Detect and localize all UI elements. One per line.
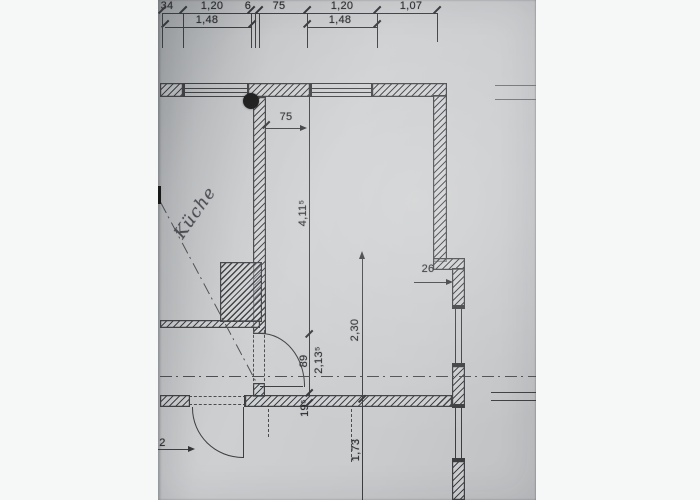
dim-label-107: 1,07	[398, 0, 424, 12]
right-wall-segment	[452, 366, 465, 407]
adjacent-wall-line	[495, 85, 536, 86]
door-jamb	[189, 395, 190, 407]
window-sill	[452, 363, 465, 367]
bottom-wall-segment	[160, 395, 190, 407]
window-frame-line	[310, 92, 372, 93]
top-wall-segment	[248, 83, 310, 97]
window-sill	[452, 458, 465, 462]
dim-line-75	[266, 128, 301, 129]
extension-line	[307, 13, 308, 48]
door-opening-dashed	[189, 404, 246, 405]
dim-label-173: 1,73	[350, 435, 362, 465]
window-frame-line	[461, 407, 462, 461]
extension-line	[377, 13, 378, 48]
dim-label-75: 75	[277, 111, 295, 123]
dim-label-2135: 2,13⁵	[313, 343, 325, 377]
room-name-label: Küche	[165, 176, 228, 252]
hidden-edge-dashed	[268, 409, 269, 437]
dim-label-4115: 4,11⁵	[297, 193, 309, 233]
window-frame-line	[455, 407, 456, 461]
window-sill	[452, 404, 465, 408]
adjacent-wall-line	[495, 99, 536, 100]
dim-arrow	[446, 279, 453, 285]
extension-line	[183, 13, 184, 48]
door-opening-dashed	[189, 396, 246, 397]
extension-line	[255, 13, 256, 48]
window-sill	[452, 305, 465, 309]
bottom-wall-segment	[245, 395, 452, 407]
extension-line	[259, 13, 260, 48]
column-marker-dot	[243, 93, 259, 109]
floorplan-photo: 34 1,20 6 75 1,20 1,07 1,48 1,48	[158, 0, 536, 500]
dim-label-148b: 1,48	[327, 14, 353, 26]
axis-dashdot-line	[160, 376, 536, 377]
photo-edge-mark	[158, 186, 161, 204]
dim-arrow	[300, 125, 307, 131]
top-wall-segment	[160, 83, 183, 97]
extension-line	[162, 13, 163, 48]
dim-label-75top: 75	[271, 0, 287, 12]
dim-label-26: 26	[419, 263, 437, 275]
adjacent-wall-line	[491, 392, 536, 393]
chimney-block	[220, 262, 262, 322]
dim-label-148a: 1,48	[194, 14, 220, 26]
window-frame-line	[183, 88, 248, 89]
door-swing-arc	[192, 407, 244, 458]
right-wall-segment	[452, 268, 465, 308]
door-jamb	[244, 395, 245, 407]
window-frame-line	[455, 308, 456, 366]
dim-label-120a: 1,20	[199, 0, 225, 12]
extension-line	[437, 13, 438, 42]
dim-line-top2a	[165, 27, 252, 28]
window-frame-line	[183, 92, 248, 93]
dim-line-top2b	[307, 27, 377, 28]
window-jamb	[183, 84, 185, 96]
dim-arrow	[188, 446, 195, 452]
dim-line-26	[414, 282, 446, 283]
dim-arrow	[359, 251, 365, 259]
window-jamb	[371, 84, 373, 96]
window-frame-line	[461, 308, 462, 366]
window-jamb	[310, 84, 312, 96]
adjacent-wall-line	[491, 400, 536, 401]
dim-label-120b: 1,20	[329, 0, 355, 12]
dim-label-2: 2	[158, 437, 167, 449]
extension-line	[251, 13, 252, 48]
right-wall-upper	[433, 95, 447, 262]
window-frame-line	[310, 88, 372, 89]
dim-label-230: 2,30	[349, 315, 361, 345]
door-swing-arc	[260, 333, 305, 387]
hidden-edge-dashed	[351, 409, 352, 462]
dim-line-2	[158, 449, 189, 450]
right-wall-segment	[452, 461, 465, 500]
